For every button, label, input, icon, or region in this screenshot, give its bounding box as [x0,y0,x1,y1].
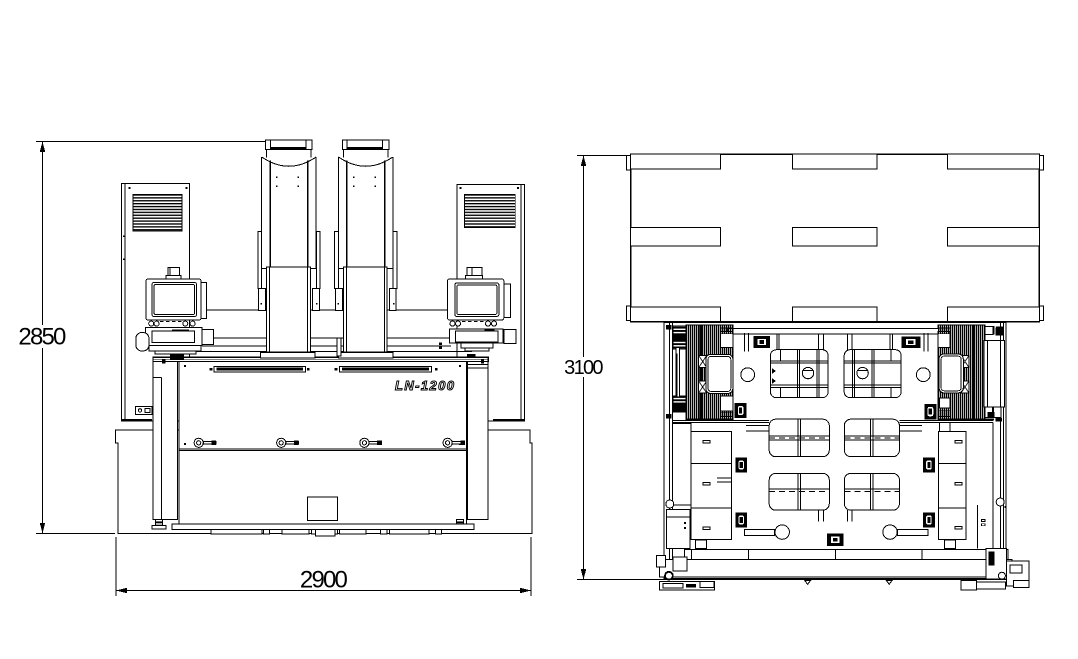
svg-text:2900: 2900 [300,567,348,594]
svg-text:2850: 2850 [18,324,66,351]
svg-text:3100: 3100 [564,357,603,379]
svg-text:LN-1200: LN-1200 [395,378,455,393]
